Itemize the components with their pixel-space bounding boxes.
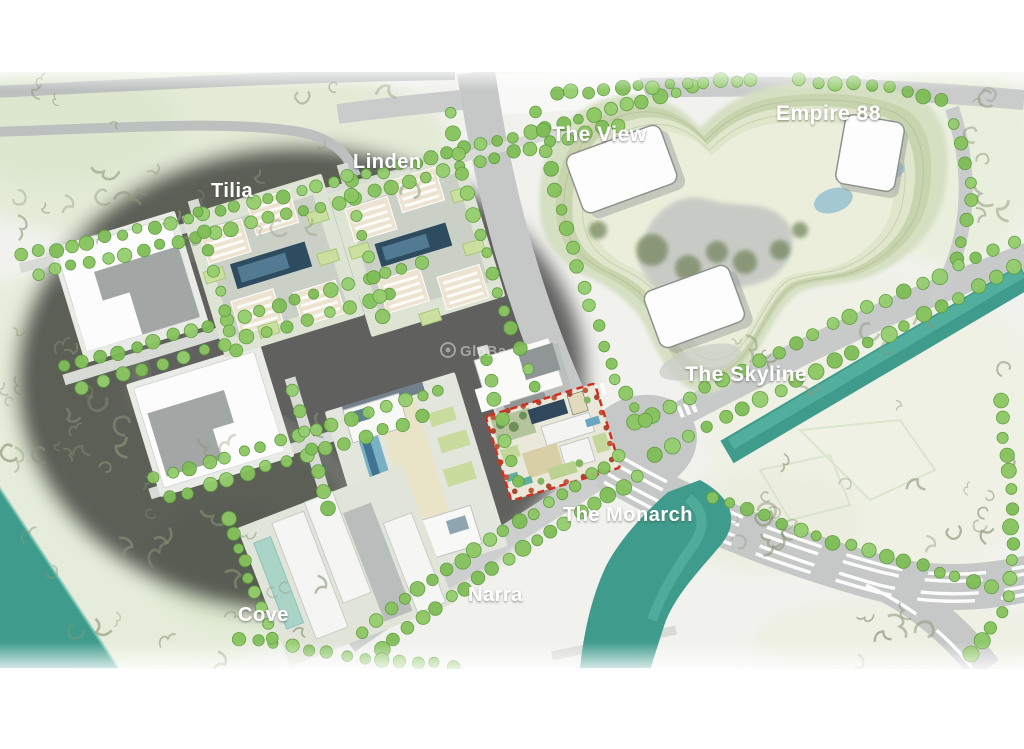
label-linden: Linden bbox=[353, 151, 422, 173]
watermark-text: GloBa bbox=[460, 343, 507, 360]
label-the-view: The View bbox=[552, 123, 647, 146]
tower-empire-88 bbox=[833, 113, 910, 199]
label-tilia: Tilia bbox=[211, 180, 254, 202]
label-empire-88: Empire 88 bbox=[776, 102, 881, 125]
margin-bottom bbox=[0, 669, 1024, 749]
label-narra: Narra bbox=[468, 584, 523, 606]
margin-top bbox=[0, 0, 1024, 72]
masterplan-canvas: GloBa The View Empire 88 Linden Tilia Th… bbox=[0, 0, 1024, 749]
masterplan-map: GloBa The View Empire 88 Linden Tilia Th… bbox=[0, 0, 1024, 749]
label-cove: Cove bbox=[238, 604, 289, 626]
label-the-monarch: The Monarch bbox=[563, 504, 693, 526]
label-the-skyline: The Skyline bbox=[685, 363, 807, 386]
